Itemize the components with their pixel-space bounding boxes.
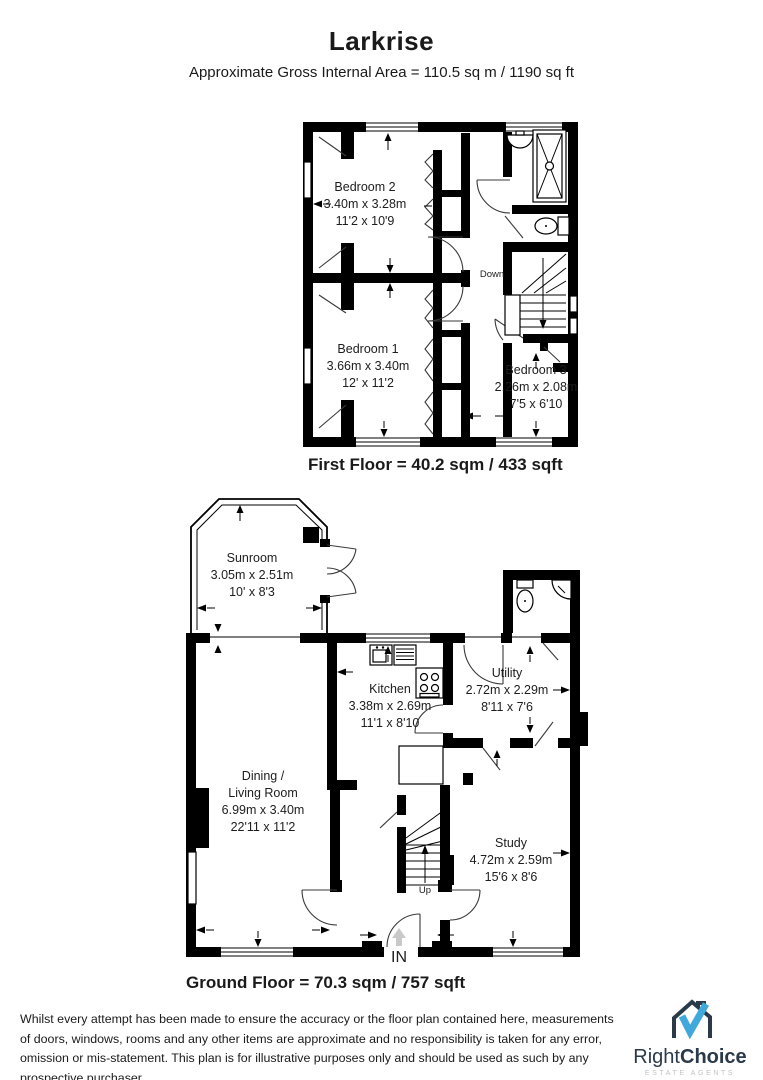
sunroom-name: Sunroom	[227, 551, 278, 565]
entrance-in-label: IN	[391, 949, 407, 966]
study-name: Study	[495, 836, 528, 850]
bedroom1-metric: 3.66m x 3.40m	[327, 359, 410, 373]
dining-living-imperial: 22'11 x 11'2	[231, 820, 296, 834]
first-floor-plan: Bedroom 2 3.40m x 3.28m 11'2 x 10'9 Bedr…	[303, 122, 578, 447]
agency-logo: RightChoice ESTATE AGENTS	[620, 996, 760, 1077]
brand-regular: Right	[633, 1046, 680, 1068]
bedroom2-name: Bedroom 2	[334, 180, 395, 194]
brand-tagline: ESTATE AGENTS	[620, 1070, 760, 1077]
brand-name: RightChoice	[620, 1047, 760, 1067]
first-floor-fixtures	[507, 130, 569, 235]
bedroom1-imperial: 12' x 11'2	[342, 376, 394, 390]
first-floor-caption: First Floor = 40.2 sqm / 433 sqft	[308, 455, 563, 475]
floorplan-page: Larkrise Approximate Gross Internal Area…	[0, 0, 763, 1080]
wc-toilet-icon	[517, 580, 533, 612]
ground-floor-caption: Ground Floor = 70.3 sqm / 757 sqft	[186, 973, 465, 993]
utility-name: Utility	[492, 666, 523, 680]
brand-bold: Choice	[680, 1046, 747, 1068]
bedroom1-name: Bedroom 1	[337, 342, 398, 356]
stairs-up-label: Up	[419, 885, 431, 896]
utility-metric: 2.72m x 2.29m	[466, 683, 549, 697]
wc-corner-basin-icon	[552, 580, 571, 599]
dining-living-metric: 6.99m x 3.40m	[222, 803, 305, 817]
study-imperial: 15'6 x 8'6	[485, 870, 538, 884]
floorplan-drawing: Bedroom 2 3.40m x 3.28m 11'2 x 10'9 Bedr…	[0, 0, 763, 1080]
sunroom-imperial: 10' x 8'3	[229, 585, 275, 599]
kitchen-metric: 3.38m x 2.69m	[349, 699, 432, 713]
first-floor-stairs	[505, 254, 566, 335]
study-metric: 4.72m x 2.59m	[470, 853, 553, 867]
dining-living-name-line1: Dining /	[242, 769, 285, 783]
bedroom2-imperial: 11'2 x 10'9	[336, 214, 395, 228]
shower-icon	[533, 130, 566, 202]
ground-floor-plan: Sunroom 3.05m x 2.51m 10' x 8'3 Kitchen …	[186, 499, 588, 966]
disclaimer-text: Whilst every attempt has been made to en…	[20, 1010, 620, 1080]
house-check-icon	[658, 996, 722, 1040]
kitchen-name: Kitchen	[369, 682, 411, 696]
ground-floor-room-labels: Sunroom 3.05m x 2.51m 10' x 8'3 Kitchen …	[211, 551, 553, 966]
dining-living-name-line2: Living Room	[228, 786, 297, 800]
sunroom-metric: 3.05m x 2.51m	[211, 568, 294, 582]
utility-imperial: 8'11 x 7'6	[481, 700, 533, 714]
bedroom2-metric: 3.40m x 3.28m	[324, 197, 407, 211]
entrance-arrow-icon	[392, 928, 406, 946]
understairs-cupboard	[399, 746, 443, 784]
kitchen-sink-icon	[370, 645, 416, 665]
hob-icon	[416, 668, 443, 698]
bedroom3-name: Bedroom 3	[505, 363, 566, 377]
toilet-icon	[535, 217, 569, 235]
kitchen-imperial: 11'1 x 8'10	[361, 716, 420, 730]
bedroom3-imperial: 7'5 x 6'10	[510, 397, 563, 411]
stairs-down-label: Down	[480, 269, 504, 280]
bedroom3-metric: 2.26m x 2.08m	[495, 380, 578, 394]
